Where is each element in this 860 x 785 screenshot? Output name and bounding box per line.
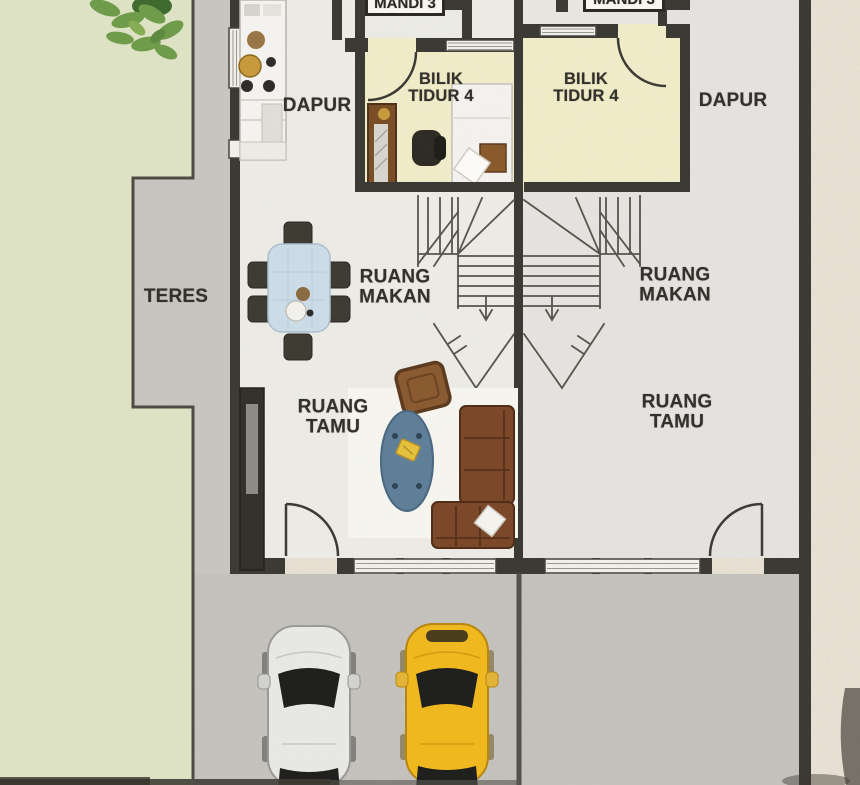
grain-overlay: [0, 0, 860, 785]
floor-plan-svg: [0, 0, 860, 785]
floor-plan-photo: MANDI 3 MANDI 3 BILIK TIDUR 4 BILIK TIDU…: [0, 0, 860, 785]
